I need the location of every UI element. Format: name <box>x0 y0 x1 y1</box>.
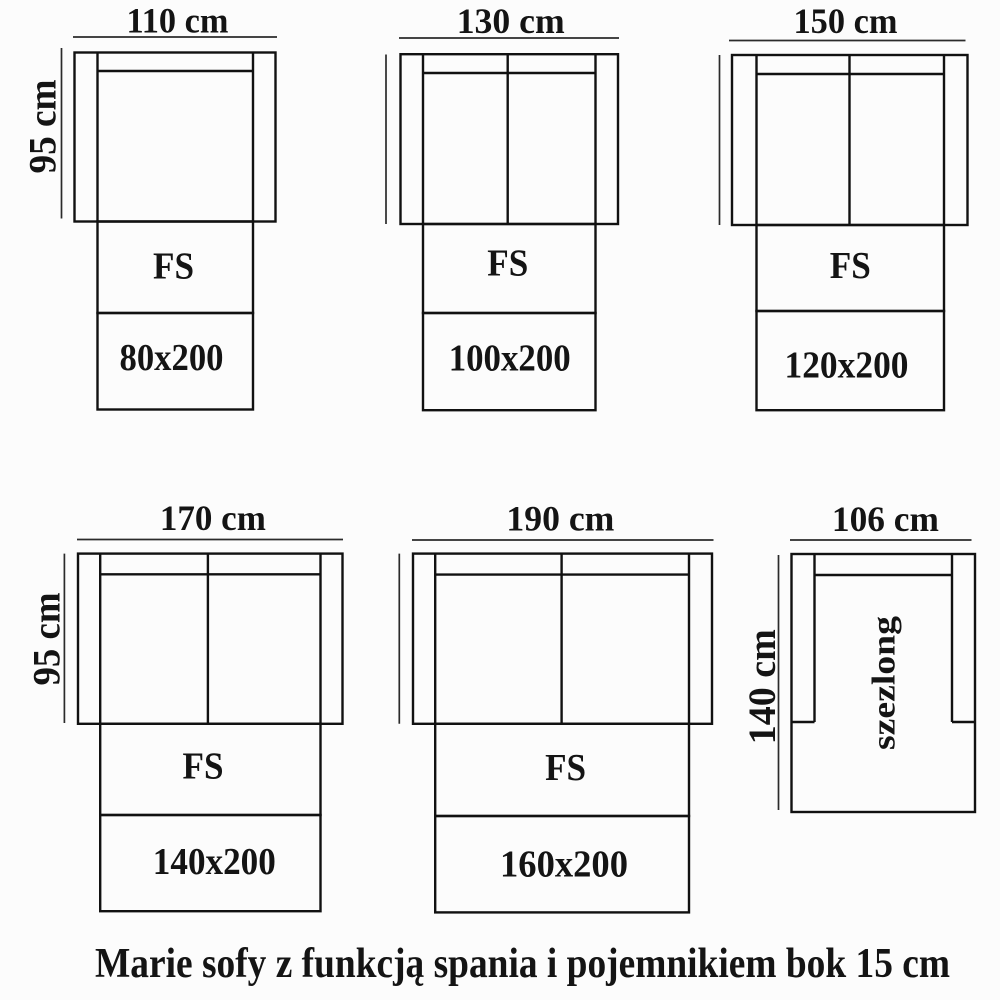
svg-text:140 cm: 140 cm <box>741 629 784 744</box>
svg-text:170 cm: 170 cm <box>160 498 266 538</box>
svg-text:190 cm: 190 cm <box>506 499 614 539</box>
svg-text:130 cm: 130 cm <box>457 1 565 41</box>
svg-text:100x200: 100x200 <box>449 337 571 379</box>
svg-text:FS: FS <box>830 245 871 287</box>
svg-text:FS: FS <box>545 747 586 789</box>
svg-text:150 cm: 150 cm <box>794 1 898 41</box>
svg-text:szezlong: szezlong <box>867 615 903 750</box>
svg-text:80x200: 80x200 <box>120 337 224 379</box>
svg-text:FS: FS <box>183 746 224 788</box>
svg-text:160x200: 160x200 <box>500 844 628 886</box>
svg-text:110 cm: 110 cm <box>127 1 229 41</box>
svg-text:106 cm: 106 cm <box>832 499 939 539</box>
svg-text:120x200: 120x200 <box>785 345 909 387</box>
svg-text:FS: FS <box>153 246 194 288</box>
svg-text:95 cm: 95 cm <box>26 593 69 686</box>
svg-text:Marie sofy z funkcją spania i: Marie sofy z funkcją spania i pojemnikie… <box>95 941 950 987</box>
svg-text:140x200: 140x200 <box>153 841 276 883</box>
svg-text:FS: FS <box>487 243 528 285</box>
svg-text:95 cm: 95 cm <box>22 80 65 174</box>
